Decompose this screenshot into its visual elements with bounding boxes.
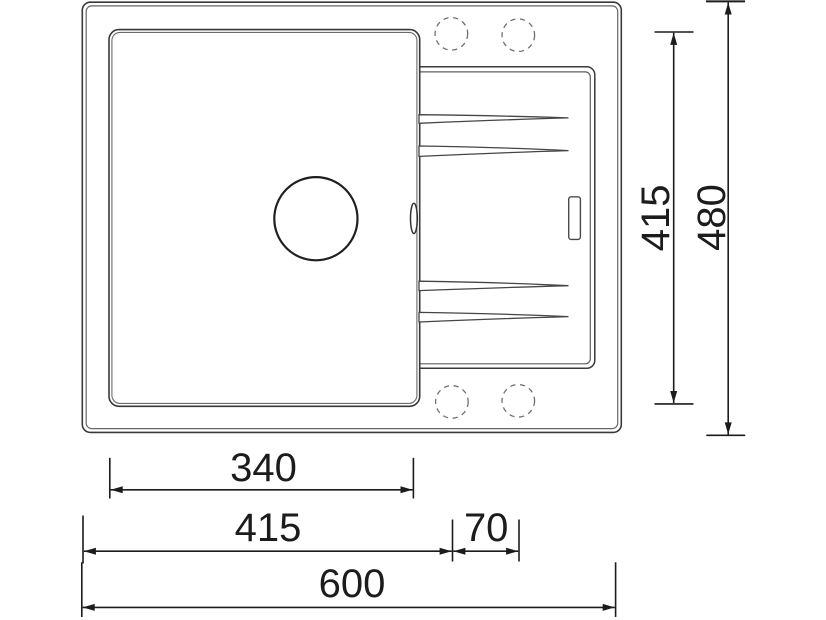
svg-text:340: 340 (230, 446, 297, 490)
svg-text:415: 415 (235, 506, 302, 550)
svg-text:600: 600 (319, 562, 386, 606)
svg-text:480: 480 (690, 184, 734, 251)
svg-text:70: 70 (464, 506, 509, 550)
svg-text:415: 415 (634, 185, 678, 252)
